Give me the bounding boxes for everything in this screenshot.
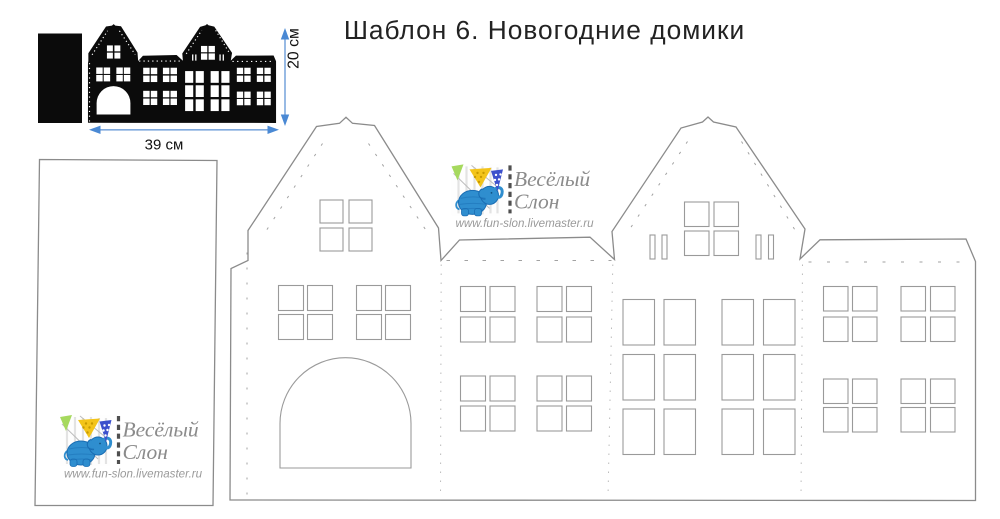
svg-text:39 см: 39 см [145, 137, 184, 154]
svg-text:20 см: 20 см [286, 28, 303, 69]
svg-text:Шаблон 6. Новогодние домики: Шаблон 6. Новогодние домики [344, 15, 745, 45]
